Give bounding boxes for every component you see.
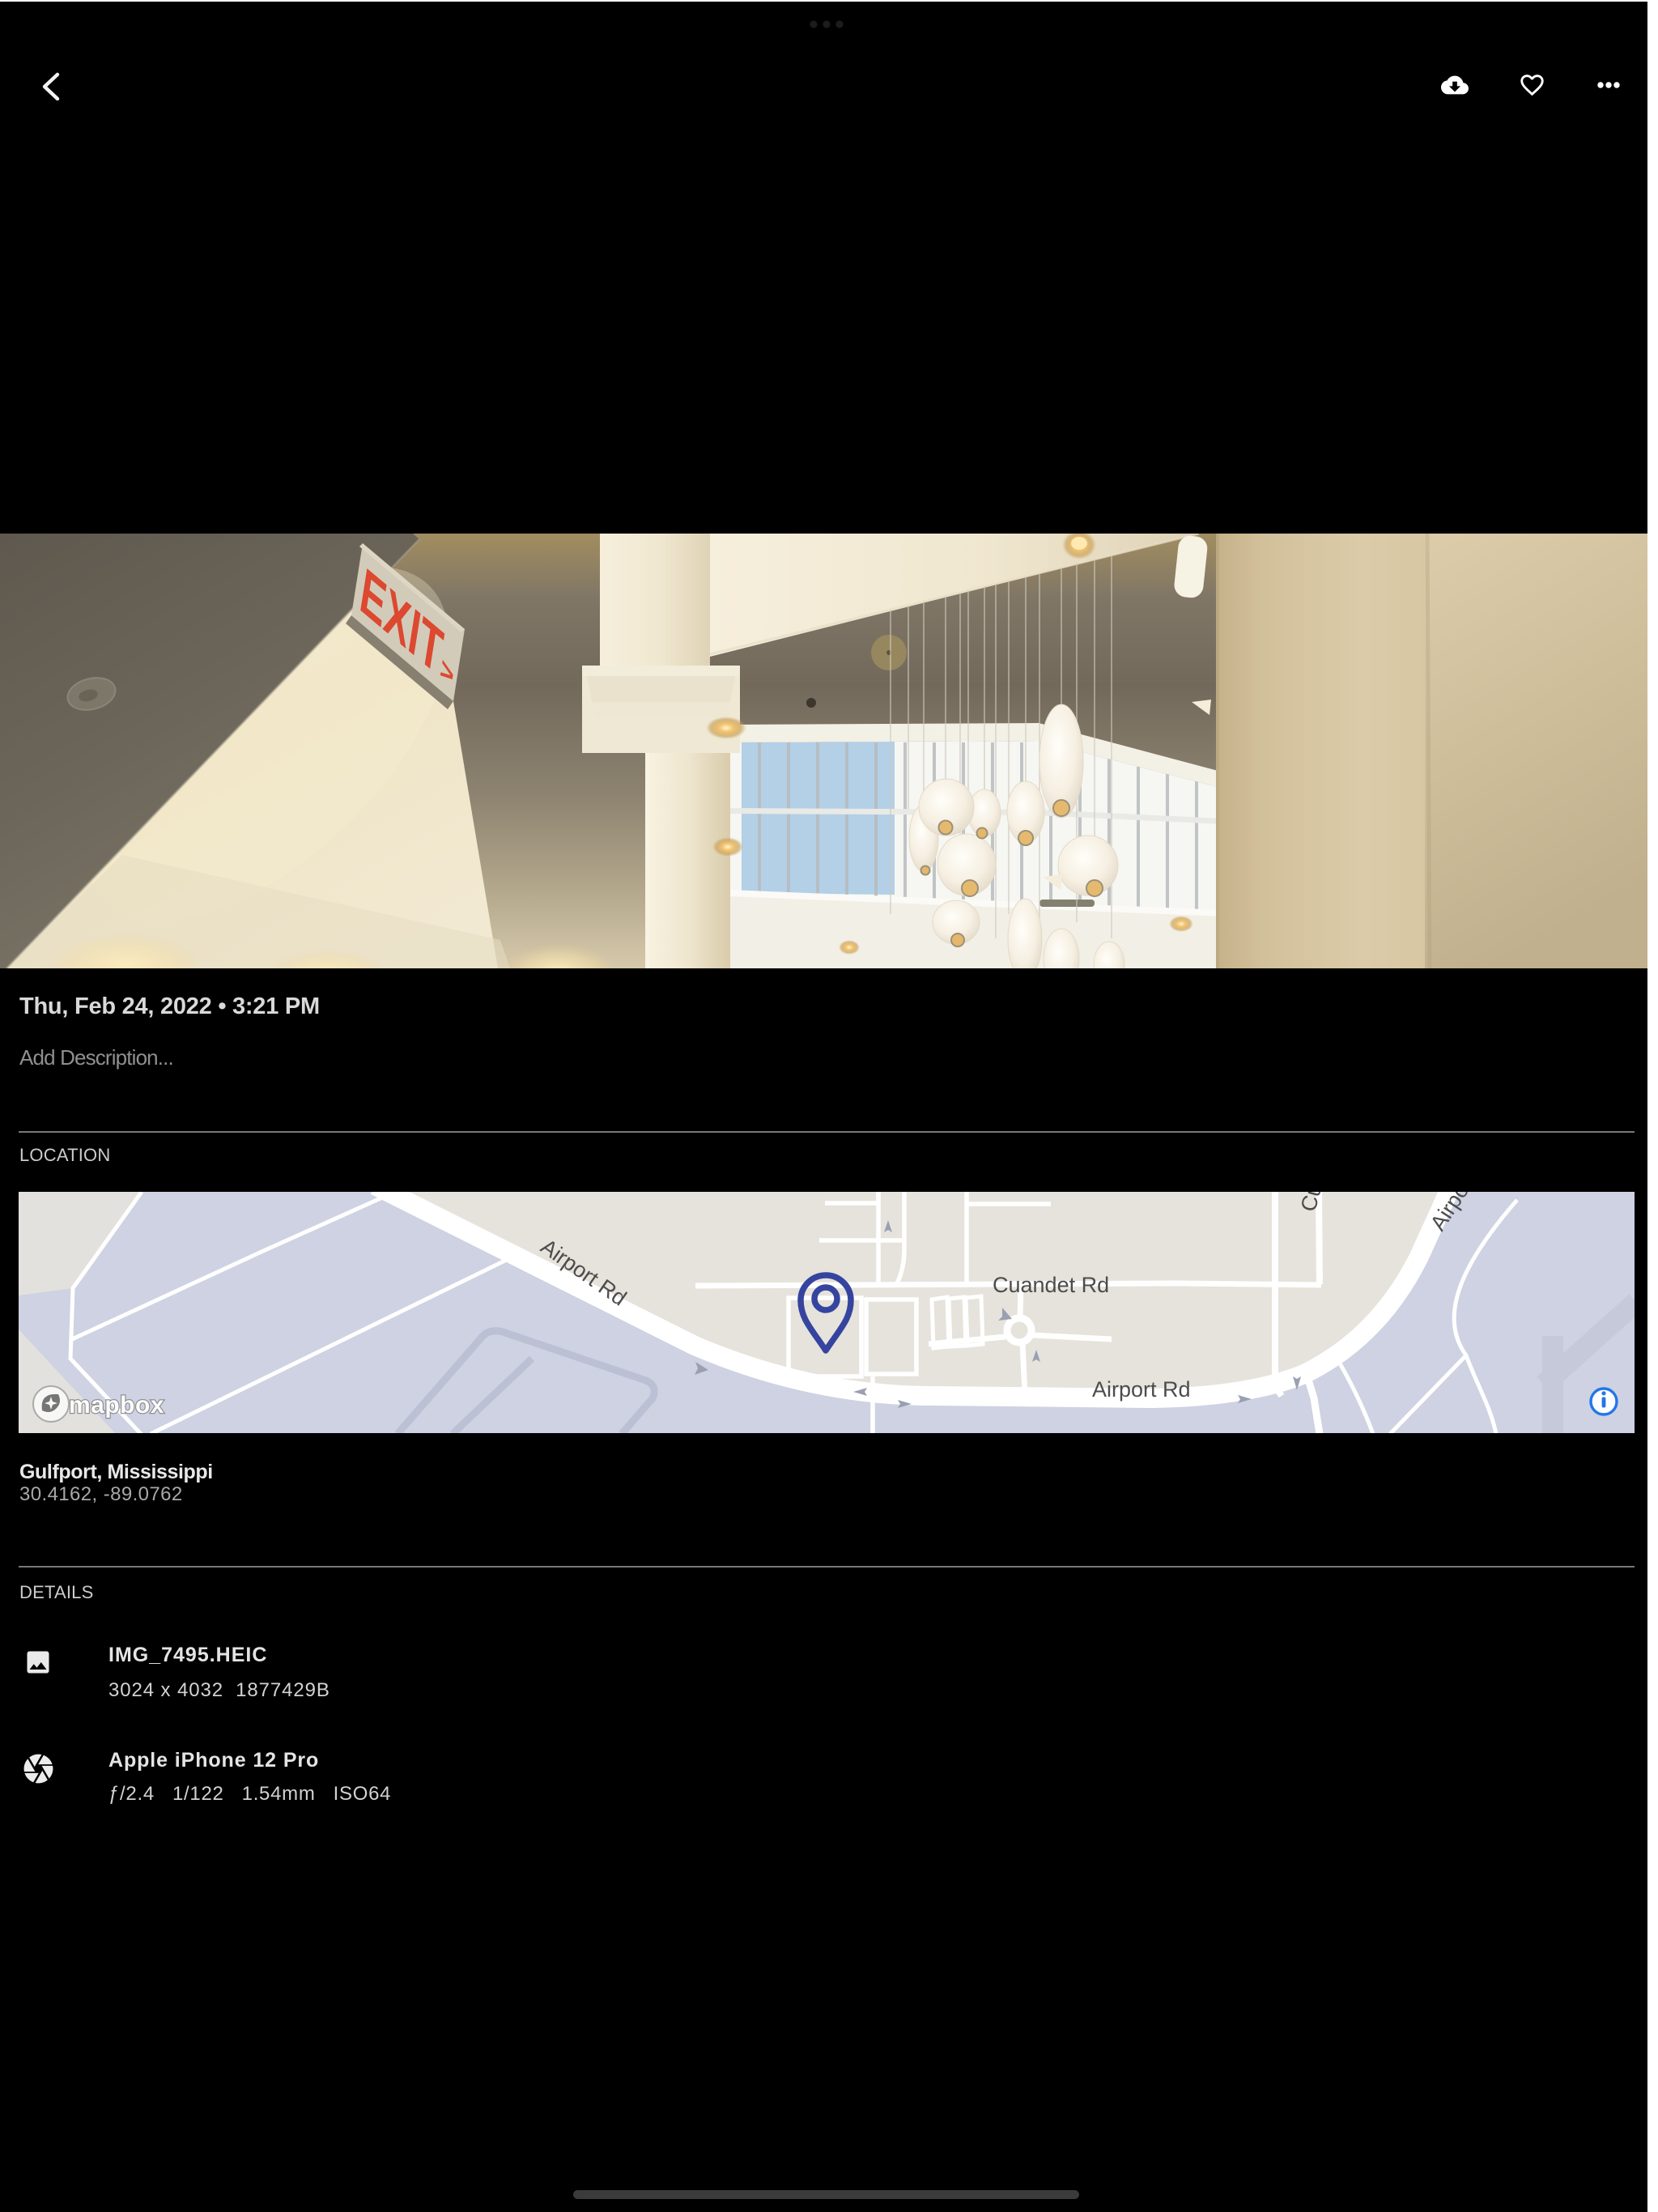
svg-text:Airport Rd: Airport Rd [1092, 1377, 1191, 1402]
svg-text:Cuandet Rd: Cuandet Rd [993, 1273, 1109, 1297]
svg-text:mapbox: mapbox [69, 1392, 164, 1419]
